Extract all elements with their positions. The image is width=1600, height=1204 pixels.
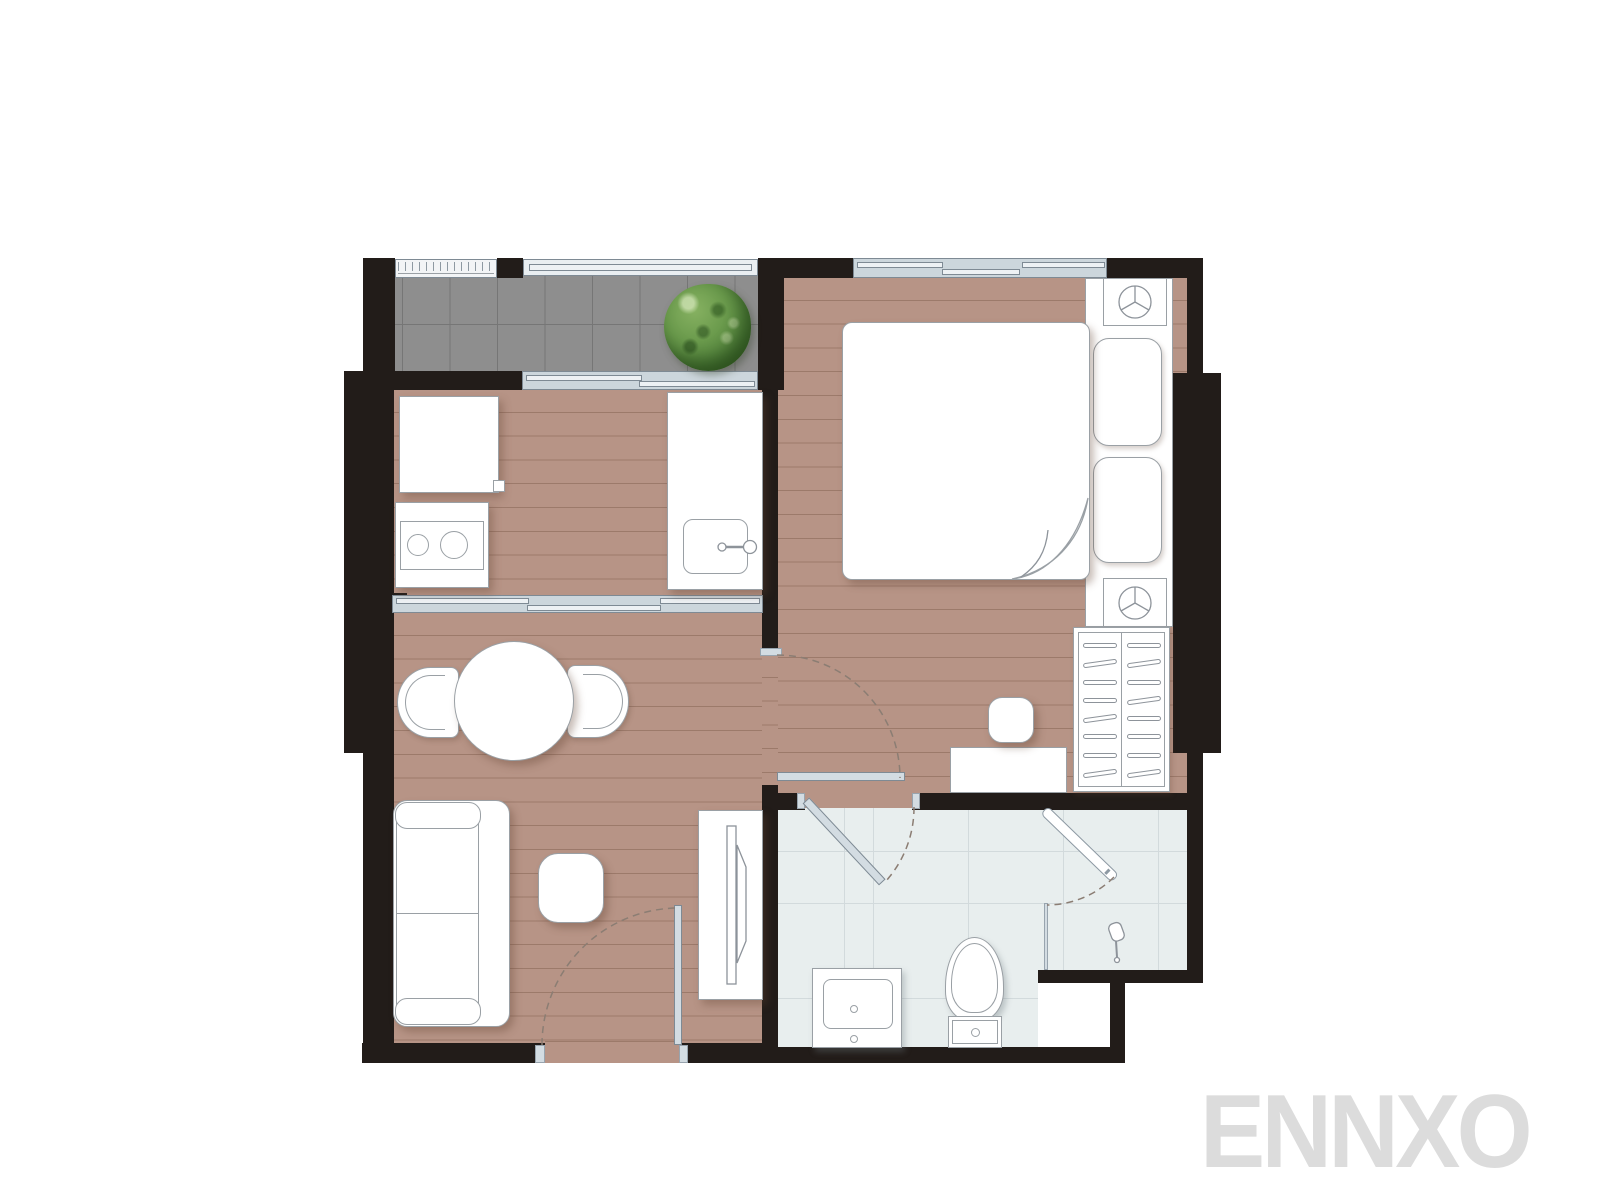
fridge-handle (493, 480, 505, 492)
floor-plan: ENNXO (0, 0, 1600, 1204)
wall-segment (1187, 258, 1203, 376)
pillow (1093, 457, 1162, 563)
wall-segment (762, 390, 778, 653)
hanger-icon (1127, 716, 1161, 721)
flush-button (971, 1028, 980, 1037)
fridge (399, 396, 499, 493)
shower-door-handle (1104, 869, 1110, 875)
window-panel (1022, 262, 1105, 268)
wardrobe-divider (1121, 632, 1122, 787)
nightstand (1103, 578, 1167, 627)
chair-back-line (583, 674, 623, 729)
dressing-desk (950, 747, 1067, 793)
wall-segment (1173, 373, 1221, 753)
ac-ledge-grille (395, 259, 497, 278)
door-jamb (912, 793, 920, 809)
toilet-cistern (948, 1016, 1002, 1048)
pillow (1093, 338, 1162, 446)
grille-ticks (398, 262, 494, 271)
hanger-icon (1083, 680, 1117, 685)
kitchen-partition-window (392, 595, 763, 613)
window-panel (527, 605, 661, 611)
sofa-seat (396, 818, 479, 1011)
window-panel (857, 262, 943, 268)
wall-segment (344, 371, 394, 753)
vanity-counter (812, 968, 902, 1048)
entry-door-leaf (674, 905, 682, 1045)
bathroom-door-threshold-floor (805, 793, 913, 810)
kitchen-sink-basin (683, 519, 748, 574)
hanger-icon (1127, 753, 1161, 758)
kitchen-sink-counter (667, 392, 763, 590)
wardrobe (1073, 627, 1170, 792)
coffee-pouf (538, 853, 604, 923)
watermark: ENNXO (1200, 1080, 1529, 1184)
headboard-unit (1085, 278, 1173, 627)
burner-icon (440, 531, 468, 559)
hanger-icon (1083, 753, 1117, 758)
chair-back-line (405, 675, 445, 730)
door-jamb (679, 1045, 688, 1063)
sofa-armrest (395, 998, 481, 1025)
sofa-armrest (395, 802, 481, 829)
bedroom-window (853, 258, 1107, 278)
window-panel (396, 598, 529, 604)
stove-counter (395, 502, 489, 588)
toilet-bowl-inner (951, 943, 998, 1013)
dining-table (454, 641, 574, 761)
burner-icon (407, 534, 429, 556)
window-panel (660, 598, 760, 604)
wall-segment (762, 1047, 1125, 1063)
slider-panel (526, 375, 642, 381)
grille-line (398, 273, 494, 274)
window-panel (942, 269, 1020, 275)
hanger-icon (1083, 698, 1117, 703)
hanger-icon (1083, 643, 1117, 648)
balcony-sliding-door (522, 371, 758, 390)
wall-segment (497, 258, 523, 278)
bedroom-door-leaf (777, 772, 905, 781)
door-jamb (760, 648, 782, 656)
sofa-cushion-divider (397, 913, 478, 914)
hanger-icon (1127, 734, 1161, 739)
wall-segment (1038, 970, 1203, 983)
hanger-icon (1127, 643, 1161, 648)
tv-console (698, 810, 763, 1000)
washbasin (823, 979, 893, 1029)
wall-segment (363, 753, 394, 1063)
service-shaft (1038, 983, 1110, 1047)
wall-segment (1187, 798, 1203, 983)
shower-glass-partition (1044, 903, 1048, 970)
bedroom-pouf (988, 697, 1034, 743)
wall-segment (762, 785, 778, 1063)
wall-segment (758, 258, 784, 390)
door-jamb (535, 1045, 545, 1063)
entry-threshold-floor (545, 1041, 679, 1063)
railing-rail (529, 264, 752, 271)
bed (842, 322, 1090, 580)
faucet-dot (850, 1005, 858, 1013)
dining-chair (397, 667, 459, 738)
hanger-icon (1083, 734, 1117, 739)
balcony-railing (523, 259, 758, 276)
wall-segment (362, 1043, 545, 1063)
wall-segment (363, 258, 395, 372)
sofa (393, 800, 510, 1027)
wall-segment (912, 793, 1203, 810)
drain-dot (850, 1035, 858, 1043)
hanger-icon (1127, 680, 1161, 685)
slider-panel (639, 381, 755, 387)
nightstand (1103, 278, 1167, 326)
plant-icon (664, 284, 751, 371)
